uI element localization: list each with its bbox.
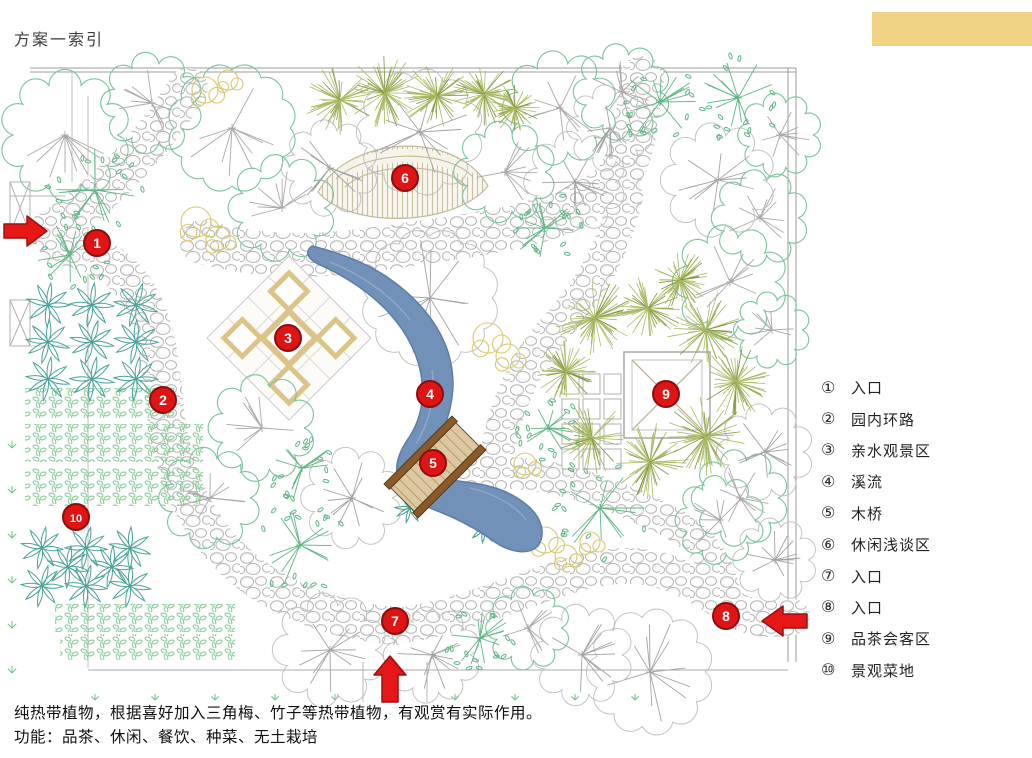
sprout bbox=[271, 694, 278, 700]
legend-item-number: ② bbox=[821, 409, 851, 429]
legend-item: ②园内环路 bbox=[821, 403, 931, 434]
legend-item-number: ⑦ bbox=[821, 566, 851, 586]
tree-cloud bbox=[691, 450, 786, 546]
sprout bbox=[8, 441, 16, 448]
legend-item: ①入口 bbox=[821, 372, 931, 403]
legend-item: ⑨品茶会客区 bbox=[821, 623, 931, 654]
sprout bbox=[8, 666, 16, 673]
plan-marker-9: 9 bbox=[653, 381, 679, 407]
sprout bbox=[8, 576, 16, 583]
note-line-2: 功能：品茶、休闲、餐饮、种菜、无土栽培 bbox=[14, 726, 542, 750]
legend-item: ⑤木桥 bbox=[821, 498, 931, 529]
plan-marker-1: 1 bbox=[84, 230, 110, 256]
legend-item-number: ① bbox=[821, 378, 851, 398]
tree-palm bbox=[490, 85, 540, 131]
tree-spoke bbox=[733, 518, 816, 602]
hedge-row bbox=[55, 604, 235, 632]
tree-cloud bbox=[734, 292, 809, 368]
teal-plant bbox=[26, 320, 69, 363]
legend-item-number: ⑨ bbox=[821, 629, 851, 649]
notes: 纯热带植物，根据喜好加入三角梅、竹子等热带植物，有观赏有实际作用。 功能：品茶、… bbox=[14, 702, 542, 750]
tree-spoke bbox=[716, 404, 811, 500]
svg-text:9: 9 bbox=[662, 386, 670, 402]
shrub-yellow bbox=[472, 323, 510, 357]
tree-cloud bbox=[738, 93, 821, 177]
svg-text:4: 4 bbox=[426, 386, 434, 402]
plan-marker-7: 7 bbox=[382, 608, 408, 634]
legend: ①入口②园内环路③亲水观景区④溪流⑤木桥⑥休闲浅谈区⑦入口⑧入口⑨品茶会客区⑩景… bbox=[821, 372, 931, 686]
svg-text:7: 7 bbox=[391, 613, 399, 629]
plan-marker-4: 4 bbox=[417, 381, 443, 407]
slide: 方案一索引 bbox=[0, 0, 1032, 758]
legend-item-label: 品茶会客区 bbox=[851, 628, 931, 649]
teal-plant bbox=[70, 283, 114, 326]
teal-plant bbox=[109, 565, 150, 607]
sprout bbox=[151, 694, 158, 700]
legend-item-label: 景观菜地 bbox=[851, 660, 915, 681]
sprout bbox=[511, 694, 518, 700]
legend-item-label: 入口 bbox=[851, 566, 883, 587]
teal-plant bbox=[109, 527, 150, 569]
legend-item-number: ⑧ bbox=[821, 597, 851, 617]
teal-plant bbox=[70, 321, 113, 363]
tree-palm bbox=[655, 253, 707, 308]
sprout bbox=[631, 694, 638, 700]
legend-item-label: 木桥 bbox=[851, 503, 883, 524]
plan-marker-6: 6 bbox=[392, 165, 418, 191]
tree-spoke bbox=[531, 604, 631, 705]
hedge-row bbox=[25, 468, 203, 506]
legend-item: ③亲水观景区 bbox=[821, 435, 931, 466]
note-line-1: 纯热带植物，根据喜好加入三角梅、竹子等热带植物，有观赏有实际作用。 bbox=[14, 702, 542, 726]
svg-text:10: 10 bbox=[70, 513, 82, 525]
legend-item-number: ⑤ bbox=[821, 503, 851, 523]
legend-item: ⑩景观菜地 bbox=[821, 655, 931, 686]
svg-text:6: 6 bbox=[401, 170, 409, 186]
tree-cloud bbox=[2, 69, 128, 200]
legend-item: ④溪流 bbox=[821, 466, 931, 497]
teal-plant bbox=[27, 283, 70, 327]
svg-text:5: 5 bbox=[429, 455, 437, 471]
legend-item: ⑥休闲浅谈区 bbox=[821, 529, 931, 560]
sprout bbox=[91, 694, 98, 700]
legend-item: ⑧入口 bbox=[821, 592, 931, 623]
plan-marker-2: 2 bbox=[150, 387, 176, 413]
legend-item-label: 溪流 bbox=[851, 471, 883, 492]
legend-item-label: 入口 bbox=[851, 597, 883, 618]
svg-text:8: 8 bbox=[722, 608, 730, 624]
sprout bbox=[8, 621, 16, 628]
legend-item-label: 亲水观景区 bbox=[851, 440, 931, 461]
plan-marker-8: 8 bbox=[713, 603, 739, 629]
legend-item-label: 入口 bbox=[851, 377, 883, 398]
legend-item-number: ④ bbox=[821, 472, 851, 492]
svg-text:3: 3 bbox=[284, 330, 292, 346]
sprout bbox=[8, 531, 16, 538]
legend-item: ⑦入口 bbox=[821, 560, 931, 591]
tree-palm bbox=[614, 277, 680, 336]
legend-item-label: 休闲浅谈区 bbox=[851, 534, 931, 555]
legend-item-number: ③ bbox=[821, 440, 851, 460]
tree-cloud bbox=[711, 170, 806, 266]
legend-item-number: ⑥ bbox=[821, 535, 851, 555]
plan-marker-10: 10 bbox=[63, 504, 89, 530]
teal-plant bbox=[21, 566, 63, 607]
svg-text:2: 2 bbox=[159, 392, 167, 408]
entrance-arrow-bottom bbox=[374, 656, 406, 702]
hedge-row bbox=[60, 634, 235, 660]
sprout bbox=[571, 694, 578, 700]
plan-marker-3: 3 bbox=[275, 325, 301, 351]
tree-spoke bbox=[586, 609, 711, 735]
legend-item-number: ⑩ bbox=[821, 660, 851, 680]
tree-branch bbox=[270, 436, 332, 501]
sprout bbox=[8, 486, 16, 493]
svg-text:1: 1 bbox=[93, 235, 101, 251]
sprout bbox=[211, 694, 218, 700]
hedge-row bbox=[25, 424, 203, 462]
plan-marker-5: 5 bbox=[420, 450, 446, 476]
legend-item-label: 园内环路 bbox=[851, 409, 915, 430]
